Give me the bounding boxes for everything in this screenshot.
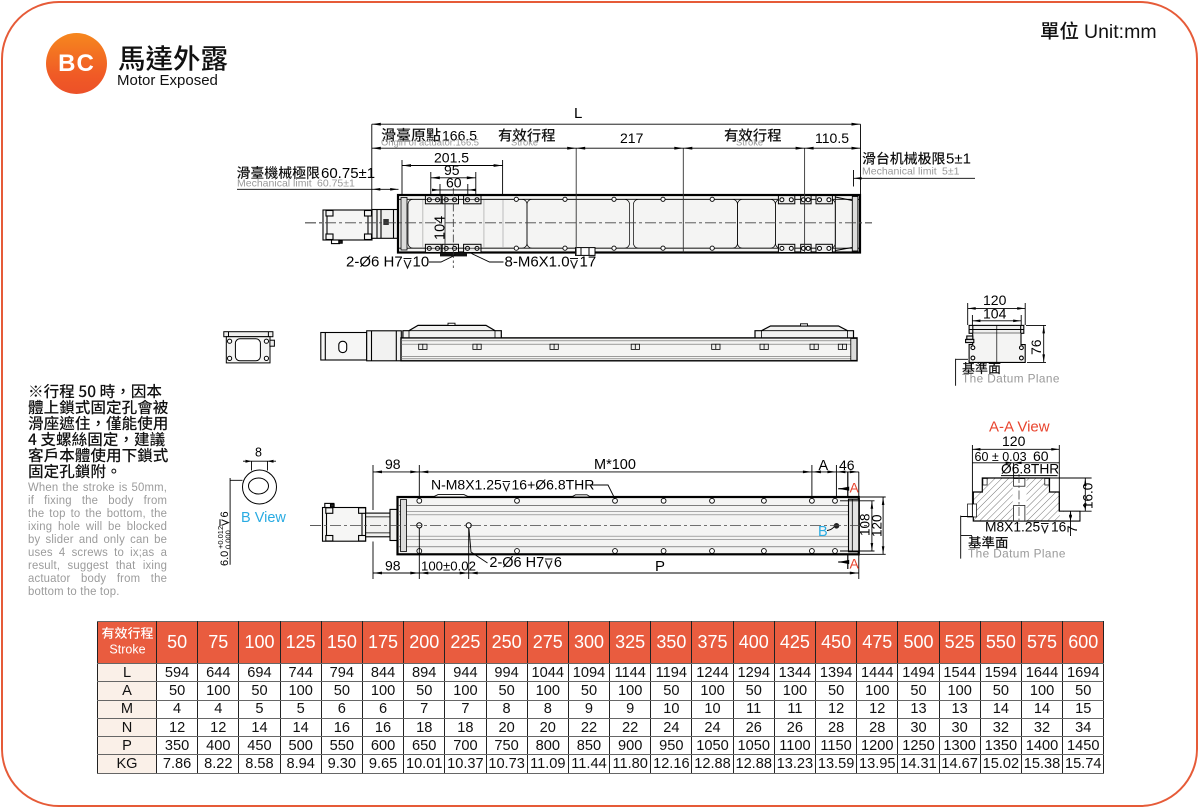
svg-text:16+Ø6.8THR: 16+Ø6.8THR: [512, 477, 595, 493]
svg-text:98: 98: [385, 456, 401, 472]
svg-text:2-Ø6 H7: 2-Ø6 H7: [346, 254, 403, 271]
svg-text:L: L: [574, 105, 582, 122]
svg-text:7: 7: [1065, 525, 1080, 533]
svg-text:104: 104: [433, 216, 449, 240]
svg-text:6: 6: [554, 555, 562, 571]
svg-text:The Datum Plane: The Datum Plane: [962, 372, 1060, 386]
svg-text:M*100: M*100: [594, 457, 636, 473]
svg-text:60.75±1: 60.75±1: [317, 178, 355, 190]
svg-text:A: A: [850, 480, 860, 496]
svg-text:5±1: 5±1: [942, 166, 960, 178]
svg-text:A: A: [850, 556, 860, 572]
svg-text:16.0: 16.0: [1081, 483, 1096, 509]
svg-text:217: 217: [620, 130, 644, 146]
svg-text:B: B: [818, 524, 828, 540]
svg-text:100±0.02: 100±0.02: [421, 559, 476, 574]
svg-text:60: 60: [446, 175, 462, 191]
svg-text:The Datum Plane: The Datum Plane: [968, 547, 1066, 561]
svg-text:Stroke: Stroke: [736, 137, 763, 148]
svg-text:104: 104: [983, 305, 1007, 321]
svg-text:Ø6.8THR: Ø6.8THR: [1001, 462, 1059, 477]
svg-text:16: 16: [1051, 520, 1067, 535]
svg-text:A: A: [819, 458, 829, 474]
svg-text:Stroke: Stroke: [511, 137, 538, 148]
svg-text:10: 10: [413, 254, 430, 271]
svg-text:2-Ø6 H7: 2-Ø6 H7: [489, 555, 544, 571]
svg-text:76: 76: [1028, 339, 1044, 355]
svg-text:120: 120: [870, 514, 885, 537]
svg-text:110.5: 110.5: [815, 130, 849, 146]
svg-text:M8X1.25: M8X1.25: [985, 520, 1041, 535]
svg-text:N-M8X1.25: N-M8X1.25: [431, 477, 502, 493]
svg-text:P: P: [655, 558, 665, 575]
svg-text:Mechanical limit: Mechanical limit: [862, 166, 937, 178]
svg-text:Origin of actuator:166.5: Origin of actuator:166.5: [381, 137, 479, 148]
svg-text:8-M6X1.0: 8-M6X1.0: [505, 254, 570, 271]
svg-text:46: 46: [839, 457, 855, 473]
svg-text:120: 120: [1002, 433, 1026, 449]
svg-text:17: 17: [580, 254, 597, 271]
svg-text:Stroke: Stroke: [109, 643, 145, 657]
svg-text:98: 98: [385, 558, 401, 574]
